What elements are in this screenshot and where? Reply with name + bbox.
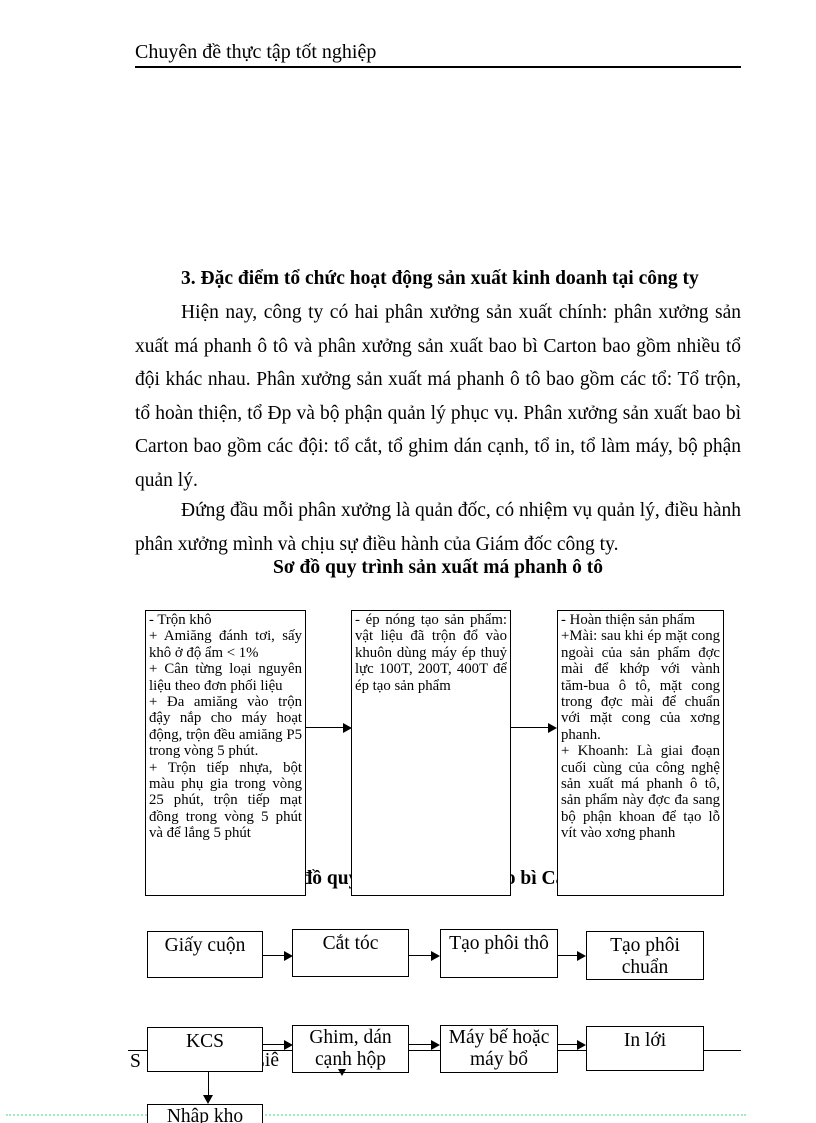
flow-arrow-right bbox=[511, 727, 549, 728]
flow-box-label: Máy bế hoặc máy bổ bbox=[449, 1027, 550, 1070]
flow-box-kcs: KCS bbox=[147, 1027, 263, 1072]
arrow-right-icon bbox=[577, 1040, 586, 1050]
diagram1-title: Sơ đồ quy trình sản xuất má phanh ô tô bbox=[135, 557, 741, 579]
arrow-down-icon bbox=[203, 1095, 213, 1104]
flow-arrow-right bbox=[263, 955, 285, 956]
flow-box-label: In lới bbox=[624, 1030, 666, 1051]
flow-arrow-down bbox=[208, 1072, 209, 1096]
flow-box-label: Giấy cuộn bbox=[165, 935, 246, 956]
arrow-right-icon bbox=[431, 951, 440, 961]
document-page: Chuyên đề thực tập tốt nghiệp 3. Đặc điể… bbox=[0, 0, 816, 1123]
flow-box-text: +Mài: sau khi ép mặt cong ngoài của sản … bbox=[561, 628, 720, 743]
flow-box-text: - Trộn khô bbox=[149, 612, 302, 628]
flow-box-text: - Hoàn thiện sản phẩm bbox=[561, 612, 720, 628]
flow-box-text: + Đa amiăng vào trộn đậy nắp cho máy hoạ… bbox=[149, 694, 302, 760]
flow-box-text: + Amiăng đánh tơi, sấy khô ở độ ẩm < 1% bbox=[149, 628, 302, 661]
page-header-title: Chuyên đề thực tập tốt nghiệp bbox=[135, 41, 376, 64]
flow-box-hoan-thien: - Hoàn thiện sản phẩm +Mài: sau khi ép m… bbox=[557, 610, 724, 896]
flow-box-cat-toc: Cắt tóc bbox=[292, 929, 409, 977]
footer-fragment: S bbox=[130, 1051, 141, 1073]
bottom-dotted-guide-line bbox=[6, 1114, 746, 1116]
arrow-right-icon bbox=[577, 951, 586, 961]
flow-box-label: Ghim, dán cạnh hộp bbox=[309, 1027, 391, 1070]
flow-arrow-right bbox=[558, 1044, 578, 1045]
flow-box-label: Nhập kho bbox=[167, 1106, 243, 1123]
flow-box-tao-phoi-chuan: Tạo phôi chuẩn bbox=[586, 931, 704, 980]
flow-box-label: Cắt tóc bbox=[323, 933, 379, 954]
flow-box-in-loi: In lới bbox=[586, 1026, 704, 1071]
body-paragraph-2: Đứng đầu mỗi phân xưởng là quản đốc, có … bbox=[135, 494, 741, 561]
flow-box-label: KCS bbox=[186, 1031, 224, 1052]
flow-box-tron-kho: - Trộn khô + Amiăng đánh tơi, sấy khô ở … bbox=[145, 610, 306, 896]
flow-arrow-right bbox=[409, 955, 432, 956]
arrow-right-icon bbox=[431, 1040, 440, 1050]
flow-box-label: Tạo phôi thô bbox=[449, 933, 549, 954]
flow-box-ghim-dan: Ghim, dán cạnh hộp bbox=[292, 1025, 409, 1073]
arrow-down-icon bbox=[338, 1069, 346, 1076]
flow-box-label: Tạo phôi chuẩn bbox=[610, 935, 680, 978]
flow-box-ep-nong: - ép nóng tạo sản phẩm: vật liệu đã trộn… bbox=[351, 610, 511, 896]
flow-box-may-be: Máy bế hoặc máy bổ bbox=[440, 1025, 558, 1073]
flow-box-text: + Khoanh: Là giai đoạn cuối cùng của côn… bbox=[561, 743, 720, 841]
arrow-right-icon bbox=[548, 723, 557, 733]
header-rule bbox=[135, 66, 741, 68]
section-heading: 3. Đặc điểm tổ chức hoạt động sản xuất k… bbox=[135, 262, 741, 296]
flow-box-tao-phoi-tho: Tạo phôi thô bbox=[440, 929, 558, 978]
flow-arrow-right bbox=[558, 955, 578, 956]
flow-box-text: - ép nóng tạo sản phẩm: vật liệu đã trộn… bbox=[355, 612, 507, 694]
flow-arrow-right bbox=[263, 1044, 285, 1045]
flow-arrow-right bbox=[306, 727, 344, 728]
flow-box-giay-cuon: Giấy cuộn bbox=[147, 931, 263, 978]
flow-box-nhap-kho: Nhập kho bbox=[147, 1104, 263, 1123]
flow-box-text: + Cân từng loại nguyên liệu theo đơn phố… bbox=[149, 661, 302, 694]
flow-arrow-right bbox=[409, 1044, 432, 1045]
body-paragraph-1: Hiện nay, công ty có hai phân xưởng sản … bbox=[135, 296, 741, 498]
flow-box-text: + Trộn tiếp nhựa, bột màu phụ gia trong … bbox=[149, 760, 302, 842]
